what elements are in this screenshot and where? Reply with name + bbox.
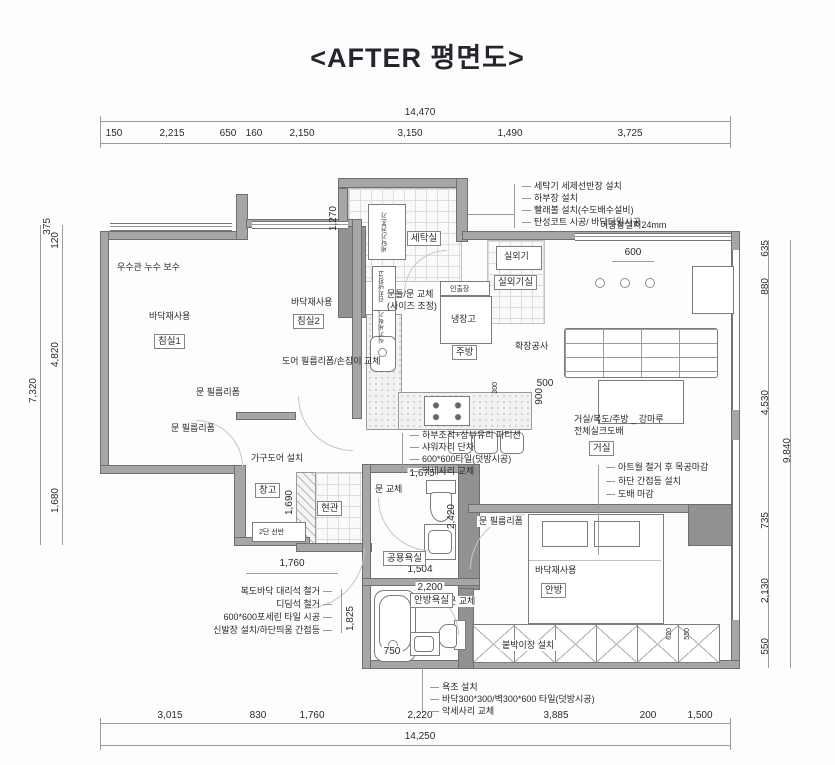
washer-dryer-label: 세탁기/건조기 xyxy=(381,212,391,253)
wall xyxy=(468,504,692,513)
dim-left-total: 7,320 xyxy=(28,378,39,403)
wall xyxy=(236,412,296,420)
pillow xyxy=(594,521,640,547)
dim-top-total: 14,470 xyxy=(405,107,436,118)
wall xyxy=(234,465,246,546)
annotation-line: 악세사리 교체 xyxy=(430,705,595,717)
living-annotation-list: 아트월 철거 후 목공마감 하단 간접등 설치 도배 마감 xyxy=(606,461,708,502)
dim-right-4: 2,130 xyxy=(760,578,771,603)
wall xyxy=(458,464,480,590)
dim-tick xyxy=(730,116,731,148)
dim-tick xyxy=(100,718,101,750)
door-replace-note: 문 교체 xyxy=(373,484,404,495)
leader-line xyxy=(514,184,515,228)
dim-closet-a: 620 xyxy=(666,628,673,640)
wall xyxy=(352,219,362,419)
leader-line xyxy=(598,497,599,555)
tub-annotation-list: 욕조 설치 바닥300*300/벽300*600 타일(덧방시공) 악세사리 교… xyxy=(430,681,595,717)
window-master-side xyxy=(732,440,740,620)
leader-line xyxy=(598,465,599,497)
dishwasher-label: 식기세척기 xyxy=(378,311,388,344)
annotation-line: 디딤석 철거 xyxy=(95,598,332,611)
dim-top-2: 650 xyxy=(220,128,237,139)
dim-bottom-2: 1,760 xyxy=(299,710,324,721)
annotation-line: 세탁기 세제선반장 설치 xyxy=(522,180,641,192)
annotation-line: 도배 마감 xyxy=(606,488,708,502)
dim-storage-height: 1,690 xyxy=(284,490,295,515)
sofa xyxy=(564,328,718,378)
door-arc-bath-common xyxy=(378,498,431,551)
pipe-duct-box xyxy=(692,266,734,314)
dim-light-span: 600 xyxy=(625,247,642,258)
annotation-line: 욕조 설치 xyxy=(430,681,595,693)
room-label-bath-common: 공용욕실 xyxy=(383,551,426,566)
dim-line-hall xyxy=(246,573,338,574)
floor-material-bedroom2: 바닥재사용 xyxy=(291,297,332,308)
dim-line-bottom-total xyxy=(100,745,730,746)
dim-hall-width: 1,760 xyxy=(279,558,304,569)
room-label-bedroom1: 침실1 xyxy=(154,334,185,349)
wall xyxy=(100,231,109,474)
dim-line-bottom-segments xyxy=(100,723,730,724)
wall xyxy=(338,178,468,188)
door-reform-note: 도어 필름리폼/손잡이 교체 xyxy=(282,356,381,367)
hall-annotation-list: 복도바닥 대리석 철거 디딤석 철거 600*600포세린 타일 시공 신발장 … xyxy=(95,585,332,637)
dim-bath-span: 2,200 xyxy=(415,582,444,593)
door-film-note: 문 필름리폼 xyxy=(477,516,525,527)
wall xyxy=(688,504,732,546)
living-floor-note: 거실/복도/주방 _ 강마루 xyxy=(574,414,664,425)
washbasin-bowl xyxy=(428,530,452,554)
dim-bath-master-height: 1,825 xyxy=(345,606,356,631)
leader-line xyxy=(402,433,403,473)
dim-line-top-total xyxy=(100,121,730,122)
dim-bottom-1: 830 xyxy=(250,710,267,721)
dim-closet-b: 550 xyxy=(684,628,691,640)
dim-bottom-0: 3,015 xyxy=(157,710,182,721)
annotation-line: 빨래볼 설치(수도배수설비) xyxy=(522,204,641,216)
annotation-line: 신발장 설치/하단띄움 간접등 xyxy=(95,624,332,637)
dim-tick xyxy=(100,116,101,148)
dim-right-5: 550 xyxy=(760,638,771,655)
dim-right-2: 4,530 xyxy=(760,390,771,415)
room-label-laundry: 세탁실 xyxy=(407,231,441,246)
downlight xyxy=(645,278,655,288)
dim-line-right-segments xyxy=(768,240,769,668)
room-label-outdoor-unit-room: 실외기실 xyxy=(494,275,537,290)
dim-tub-width: 750 xyxy=(382,646,403,657)
dim-top-7: 3,725 xyxy=(617,128,642,139)
dim-tick xyxy=(730,718,731,750)
dim-bottom-6: 1,500 xyxy=(687,710,712,721)
dim-line-left-segments xyxy=(62,225,63,545)
built-in-closet-label: 붙박이장 설치 xyxy=(500,640,556,651)
door-film-note: 문 필름리폼 xyxy=(196,387,240,398)
dim-bottom-3: 2,220 xyxy=(407,710,432,721)
wall xyxy=(236,194,248,240)
rain-pipe-note: 우수관 누수 보수 xyxy=(117,262,180,273)
dim-bottom-5: 200 xyxy=(640,710,657,721)
dim-left-2: 4,820 xyxy=(50,342,61,367)
dim-counter-depth: 900 xyxy=(534,388,545,405)
dim-line-top-segments xyxy=(100,143,730,144)
door-film-note: 문 필름리폼 xyxy=(171,423,215,434)
bath-annotation-list: 하부조적+상부유리 파티션 샤워자리 단차 600*600타일(덧방시공) 악세… xyxy=(410,429,521,477)
outdoor-unit-label: 실외기 xyxy=(504,251,529,262)
dim-right-0: 635 xyxy=(760,240,771,257)
door-arc-bedroom2 xyxy=(298,396,353,451)
annotation-line: 샤워자리 단차 xyxy=(410,441,521,453)
room-label-kitchen: 주방 xyxy=(452,345,477,360)
fridge-label: 냉장고 xyxy=(451,314,476,325)
floor-plan: <AFTER 평면도> 14,470 150 2,215 650 160 2,1… xyxy=(0,0,835,765)
downlight xyxy=(595,278,605,288)
window-bedroom1 xyxy=(110,223,232,231)
room-label-living: 거실 xyxy=(589,441,614,456)
annotation-line: 악세사리 교체 xyxy=(410,465,521,477)
living-wallpaper-note: 전체실크도배 xyxy=(574,426,624,437)
pillow xyxy=(542,521,588,547)
furniture-door-note: 가구도어 설치 xyxy=(251,453,303,464)
door-frame-note-2: (사이즈 조정) xyxy=(387,301,437,312)
pullout-cabinet-label: 인출장 xyxy=(450,284,469,295)
door-frame-note-1: 문틀/문 교체 xyxy=(387,289,433,300)
room-label-entrance: 현관 xyxy=(317,501,342,516)
room-label-master: 안방 xyxy=(541,583,566,598)
blanket-line xyxy=(529,560,661,561)
double-window-note: 이중창설치24mm xyxy=(600,220,666,231)
wall xyxy=(100,231,246,240)
dim-line-left-total xyxy=(40,225,41,545)
leader-line xyxy=(422,685,423,713)
annotation-line: 복도바닥 대리석 철거 xyxy=(95,585,332,598)
leader-line xyxy=(341,589,342,633)
dim-left-3: 1,680 xyxy=(50,488,61,513)
annotation-line: 600*600타일(덧방시공) xyxy=(410,453,521,465)
annotation-line: 하단 간접등 설치 xyxy=(606,475,708,489)
shelf-2tier-label: 2단 선반 xyxy=(259,527,284,538)
dim-top-6: 1,490 xyxy=(497,128,522,139)
window-living-top xyxy=(575,233,731,241)
washbasin2-bowl xyxy=(414,636,434,652)
annotation-line: 600*600포세린 타일 시공 xyxy=(95,611,332,624)
downlight xyxy=(620,278,630,288)
cooktop xyxy=(424,396,470,426)
dim-left-1: 120 xyxy=(50,232,61,249)
room-label-bedroom2: 침실2 xyxy=(293,314,324,329)
dim-top-3: 160 xyxy=(246,128,263,139)
leader-line xyxy=(422,666,423,685)
wall xyxy=(362,464,371,669)
leader-line xyxy=(468,214,514,215)
room-label-bath-master: 안방욕실 xyxy=(410,593,453,608)
annotation-line: 아트월 철거 후 목공마감 xyxy=(606,461,708,475)
floor-material-bedroom1: 바닥재사용 xyxy=(149,311,190,322)
dim-right-total: 9,840 xyxy=(782,438,793,463)
dim-top-1: 2,215 xyxy=(159,128,184,139)
page-title: <AFTER 평면도> xyxy=(0,36,835,75)
dim-laundry-height: 1,270 xyxy=(328,206,339,231)
dim-top-0: 150 xyxy=(106,128,123,139)
dim-top-5: 3,150 xyxy=(397,128,422,139)
dim-bottom-total: 14,250 xyxy=(405,731,436,742)
dim-top-4: 2,150 xyxy=(289,128,314,139)
room-label-storage: 창고 xyxy=(255,483,280,498)
dim-right-1: 880 xyxy=(760,278,771,295)
dim-line-light xyxy=(612,261,654,262)
floor-material-master: 바닥재사용 xyxy=(535,565,576,576)
annotation-line: 하부조적+상부유리 파티션 xyxy=(410,429,521,441)
annotation-line: 바닥300*300/벽300*600 타일(덧방시공) xyxy=(430,693,595,705)
dim-bath-common-depth: 2,420 xyxy=(446,504,457,529)
expansion-label: 확장공사 xyxy=(515,341,548,352)
dim-right-3: 735 xyxy=(760,512,771,529)
annotation-line: 하부장 설치 xyxy=(522,192,641,204)
dim-island-depth: 300 xyxy=(492,382,499,394)
